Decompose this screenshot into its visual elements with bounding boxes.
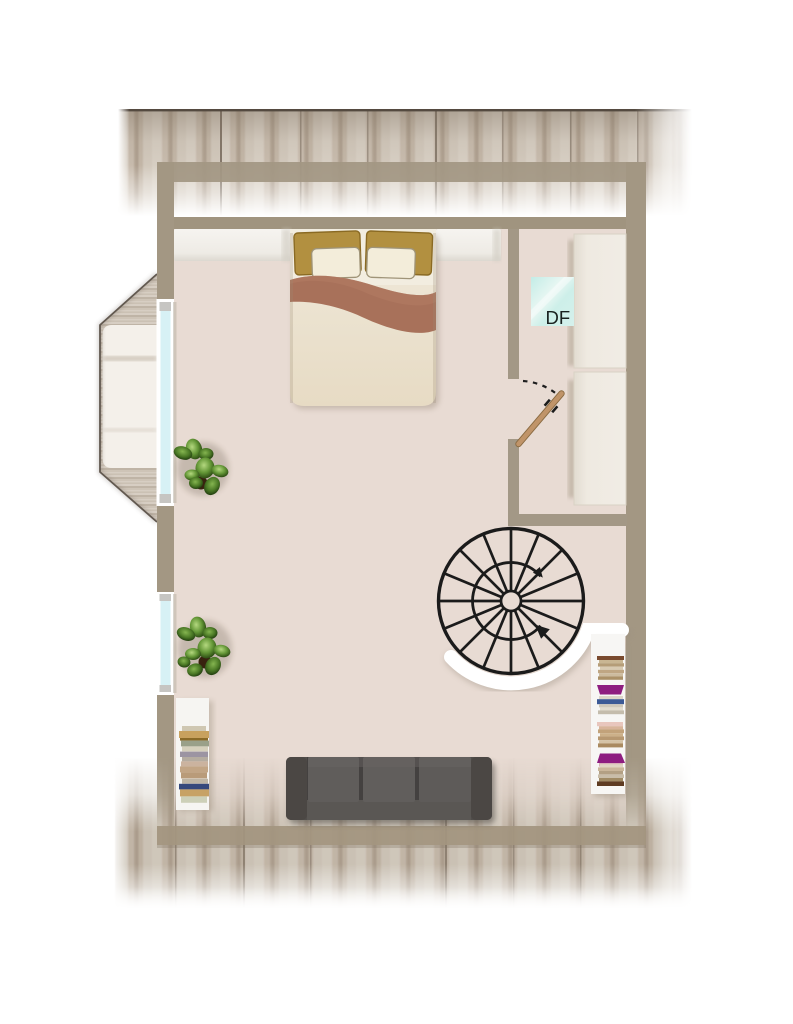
svg-text:DF: DF xyxy=(546,307,571,328)
